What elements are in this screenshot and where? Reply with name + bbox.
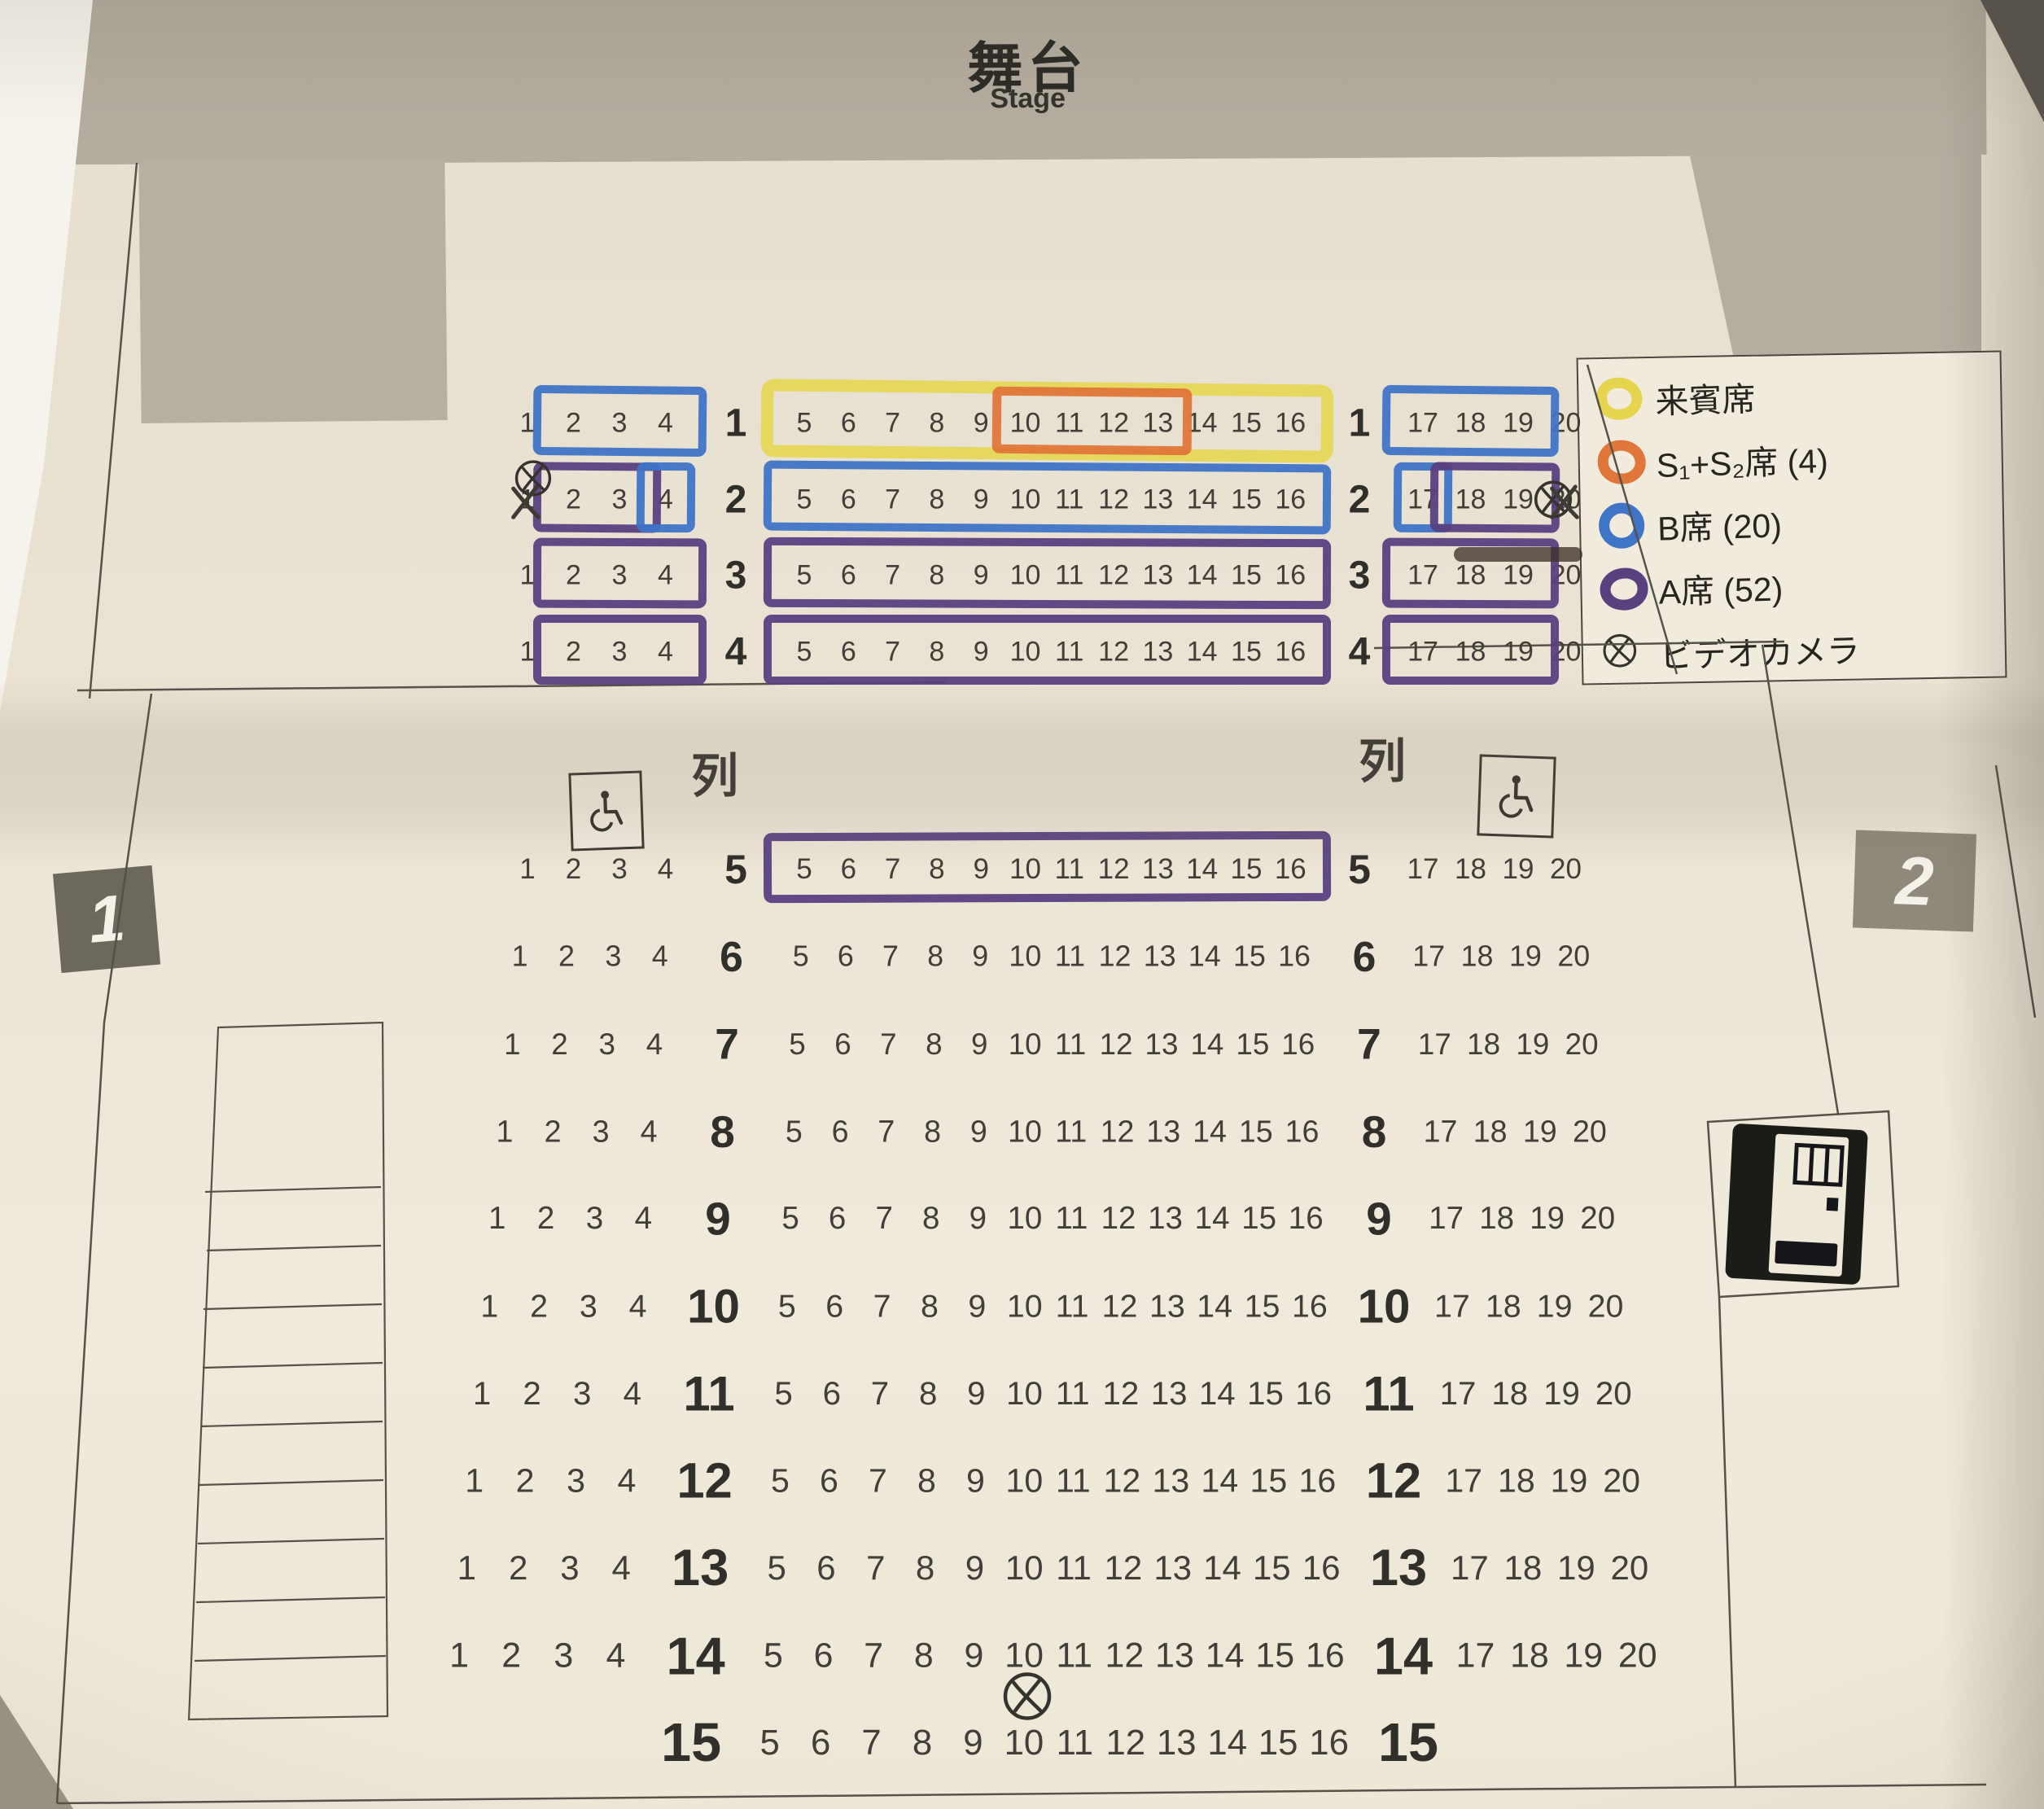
seat-14-11: 11 [1056, 1636, 1092, 1675]
seat-7-12: 12 [1100, 1027, 1133, 1062]
seat-11-10: 10 [1006, 1375, 1043, 1413]
seat-5-8: 8 [929, 853, 944, 886]
seat-6-15: 15 [1233, 940, 1266, 974]
seat-10-16: 16 [1292, 1288, 1328, 1325]
seat-13-11: 11 [1056, 1548, 1092, 1588]
seating-map: 1234567891011121314151617181920111234567… [0, 0, 2044, 1809]
seat-7-9: 9 [971, 1027, 987, 1062]
seat-10-5: 5 [778, 1288, 796, 1325]
seat-7-18: 18 [1467, 1027, 1500, 1062]
seat-13-7: 7 [866, 1548, 885, 1588]
seat-9-11: 11 [1055, 1201, 1088, 1237]
seat-4-16: 16 [1275, 636, 1306, 668]
seat-11-11: 11 [1056, 1375, 1090, 1413]
seat-8-13: 13 [1146, 1114, 1180, 1149]
seat-15-9: 9 [963, 1723, 983, 1763]
seat-9-10: 10 [1007, 1201, 1042, 1237]
seat-11-13: 13 [1151, 1375, 1188, 1413]
seat-13-14: 14 [1203, 1548, 1241, 1588]
seat-9-16: 16 [1289, 1201, 1324, 1237]
seat-1-18: 18 [1455, 408, 1486, 440]
seat-14-14: 14 [1206, 1636, 1245, 1675]
seat-1-9: 9 [974, 408, 989, 440]
seat-5-19: 19 [1503, 853, 1534, 886]
seat-9-9: 9 [969, 1201, 987, 1237]
seat-4-1: 1 [520, 636, 536, 668]
row-3-label-left: 3 [725, 554, 747, 598]
seat-1-13: 13 [1142, 408, 1173, 440]
seat-15-14: 14 [1207, 1723, 1247, 1763]
seat-10-1: 1 [480, 1288, 498, 1325]
seat-14-15: 15 [1255, 1636, 1294, 1675]
seat-12-15: 15 [1250, 1462, 1288, 1500]
seat-7-6: 6 [834, 1027, 851, 1062]
seat-5-9: 9 [973, 853, 988, 886]
seat-9-13: 13 [1148, 1201, 1183, 1237]
seat-5-7: 7 [885, 853, 900, 886]
seat-11-12: 12 [1103, 1375, 1140, 1413]
seat-3-1: 1 [520, 560, 536, 592]
row-10-label-right: 10 [1358, 1279, 1411, 1334]
seat-3-10: 10 [1010, 560, 1041, 592]
seat-3-13: 13 [1142, 560, 1173, 592]
seat-8-3: 3 [593, 1114, 610, 1149]
seat-6-8: 8 [927, 940, 943, 974]
seat-6-11: 11 [1055, 940, 1085, 974]
seat-3-7: 7 [885, 560, 900, 592]
seat-13-15: 15 [1253, 1548, 1291, 1588]
seat-6-13: 13 [1144, 940, 1176, 974]
seat-9-4: 4 [635, 1201, 652, 1237]
seat-4-12: 12 [1098, 636, 1129, 668]
seat-7-14: 14 [1190, 1027, 1223, 1062]
seat-3-15: 15 [1231, 560, 1262, 592]
seat-5-18: 18 [1455, 853, 1486, 886]
seat-9-8: 8 [922, 1201, 939, 1237]
seat-7-10: 10 [1009, 1027, 1042, 1062]
x-mark-row2-seat1 [508, 481, 544, 524]
seat-7-7: 7 [880, 1027, 896, 1062]
row-6-label-left: 6 [720, 932, 743, 981]
row-8-label-left: 8 [710, 1106, 735, 1158]
seat-5-5: 5 [796, 853, 812, 886]
row-4-label-left: 4 [725, 629, 747, 674]
seat-13-20: 20 [1611, 1548, 1649, 1588]
seat-13-16: 16 [1302, 1548, 1341, 1588]
seat-1-12: 12 [1098, 408, 1129, 440]
seat-3-18: 18 [1455, 560, 1486, 592]
seat-11-9: 9 [967, 1375, 985, 1413]
seat-9-6: 6 [829, 1201, 846, 1237]
seat-9-17: 17 [1429, 1201, 1464, 1237]
seat-2-18: 18 [1455, 484, 1486, 515]
seat-11-18: 18 [1491, 1375, 1528, 1413]
seat-7-5: 5 [789, 1027, 805, 1062]
seat-4-5: 5 [797, 636, 812, 668]
seat-4-2: 2 [566, 636, 581, 668]
wheelchair-icon [568, 770, 644, 851]
seat-3-19: 19 [1503, 560, 1534, 592]
seat-14-7: 7 [864, 1636, 883, 1675]
seat-12-14: 14 [1201, 1462, 1239, 1500]
seat-10-3: 3 [580, 1288, 597, 1325]
seat-4-15: 15 [1231, 636, 1262, 668]
seat-13-18: 18 [1504, 1548, 1543, 1588]
seat-6-14: 14 [1188, 940, 1221, 974]
seat-12-10: 10 [1006, 1462, 1044, 1500]
seat-1-19: 19 [1503, 408, 1534, 440]
seat-2-13: 13 [1142, 484, 1173, 515]
seat-11-16: 16 [1295, 1375, 1332, 1413]
seat-14-5: 5 [764, 1636, 783, 1675]
seat-11-19: 19 [1543, 1375, 1580, 1413]
row-7-label-left: 7 [715, 1019, 739, 1069]
seat-11-5: 5 [774, 1375, 792, 1413]
seat-13-3: 3 [560, 1548, 579, 1588]
seat-14-1: 1 [449, 1636, 469, 1675]
seat-10-2: 2 [530, 1288, 548, 1325]
seat-12-7: 7 [869, 1462, 887, 1500]
seat-15-11: 11 [1057, 1723, 1093, 1763]
ink-smudge [1454, 547, 1582, 562]
wheelchair-icon [1477, 754, 1556, 838]
seat-8-4: 4 [641, 1114, 658, 1149]
seat-4-13: 13 [1142, 636, 1173, 668]
seat-15-7: 7 [861, 1723, 881, 1763]
seat-4-17: 17 [1407, 636, 1438, 668]
seat-1-10: 10 [1010, 408, 1041, 440]
seat-2-14: 14 [1187, 484, 1218, 515]
seat-8-10: 10 [1008, 1114, 1042, 1149]
seat-3-20: 20 [1551, 560, 1582, 592]
seat-6-19: 19 [1509, 940, 1542, 974]
seat-11-1: 1 [473, 1375, 491, 1413]
seat-14-19: 19 [1564, 1636, 1603, 1675]
seat-14-6: 6 [814, 1636, 834, 1675]
aisle-label-left: 列 [691, 738, 738, 806]
seat-3-5: 5 [797, 560, 812, 592]
seat-7-11: 11 [1055, 1027, 1086, 1062]
seat-2-2: 2 [566, 484, 581, 515]
seat-8-11: 11 [1055, 1114, 1087, 1149]
seat-14-9: 9 [965, 1636, 984, 1675]
seat-5-16: 16 [1275, 853, 1306, 886]
seat-8-15: 15 [1239, 1114, 1273, 1149]
row-14-label-left: 14 [667, 1625, 725, 1686]
seat-6-18: 18 [1461, 940, 1494, 974]
seat-2-8: 8 [929, 484, 944, 515]
seat-11-20: 20 [1595, 1375, 1632, 1413]
seat-6-4: 4 [652, 940, 668, 974]
row-13-label-right: 13 [1370, 1539, 1427, 1597]
seat-12-11: 11 [1056, 1462, 1091, 1500]
seat-8-5: 5 [786, 1114, 803, 1149]
seat-3-3: 3 [612, 560, 628, 592]
row-7-label-right: 7 [1357, 1019, 1381, 1069]
seat-9-14: 14 [1195, 1201, 1230, 1237]
row-13-label-left: 13 [672, 1539, 729, 1597]
seat-10-10: 10 [1007, 1288, 1043, 1325]
seat-14-16: 16 [1306, 1636, 1345, 1675]
seat-6-5: 5 [793, 940, 809, 974]
seat-8-9: 9 [970, 1114, 987, 1149]
seat-2-4: 4 [658, 484, 673, 515]
seat-3-12: 12 [1098, 560, 1129, 592]
row-3-label-right: 3 [1349, 554, 1371, 598]
seat-13-13: 13 [1153, 1548, 1192, 1588]
seat-14-12: 12 [1105, 1636, 1144, 1675]
seat-6-16: 16 [1278, 940, 1311, 974]
seat-6-7: 7 [882, 940, 899, 974]
seat-2-11: 11 [1055, 484, 1083, 515]
seat-15-15: 15 [1258, 1723, 1298, 1763]
seat-10-14: 14 [1197, 1288, 1232, 1325]
seat-1-14: 14 [1187, 408, 1218, 440]
row-11-label-right: 11 [1363, 1365, 1414, 1421]
seat-1-11: 11 [1055, 408, 1083, 440]
seat-1-2: 2 [566, 408, 581, 440]
row-1-label-right: 1 [1349, 401, 1371, 446]
seat-8-1: 1 [497, 1114, 514, 1149]
seat-10-6: 6 [825, 1288, 843, 1325]
seat-4-10: 10 [1010, 636, 1041, 668]
seat-8-7: 7 [878, 1114, 895, 1149]
seat-3-2: 2 [566, 560, 581, 592]
row-6-label-right: 6 [1353, 932, 1377, 981]
seat-10-13: 13 [1149, 1288, 1185, 1325]
seat-9-7: 7 [875, 1201, 892, 1237]
seat-10-9: 9 [968, 1288, 986, 1325]
seat-13-1: 1 [457, 1548, 476, 1588]
seat-10-4: 4 [629, 1288, 647, 1325]
seat-13-10: 10 [1005, 1548, 1044, 1588]
seat-14-17: 17 [1456, 1636, 1495, 1675]
row-11-label-left: 11 [683, 1365, 734, 1421]
seat-1-5: 5 [797, 408, 812, 440]
seat-12-17: 17 [1445, 1462, 1482, 1500]
seat-5-6: 6 [841, 853, 856, 886]
seat-4-8: 8 [929, 636, 944, 668]
seat-6-6: 6 [838, 940, 854, 974]
seat-15-13: 13 [1157, 1723, 1197, 1763]
seating-chart-photo: 舞台 Stage 来賓席S₁+S₂席 (4)B席 (20)A席 (52)ビデオカ… [0, 0, 2044, 1809]
seat-1-1: 1 [520, 408, 536, 440]
seat-5-2: 2 [566, 853, 581, 886]
seat-8-12: 12 [1101, 1114, 1135, 1149]
seat-12-12: 12 [1104, 1462, 1141, 1500]
seat-9-12: 12 [1101, 1201, 1136, 1237]
seat-9-19: 19 [1530, 1201, 1565, 1237]
seat-4-7: 7 [885, 636, 900, 668]
seat-7-2: 2 [551, 1027, 567, 1062]
seat-4-6: 6 [841, 636, 856, 668]
seat-5-11: 11 [1055, 853, 1084, 886]
seat-2-10: 10 [1010, 484, 1041, 515]
seat-7-20: 20 [1565, 1027, 1599, 1062]
seat-15-6: 6 [811, 1723, 830, 1763]
seat-14-13: 13 [1155, 1636, 1194, 1675]
seat-5-13: 13 [1142, 853, 1174, 886]
row-15-label-right: 15 [1378, 1712, 1438, 1774]
seat-14-4: 4 [606, 1636, 625, 1675]
seat-10-12: 12 [1102, 1288, 1138, 1325]
seat-2-12: 12 [1098, 484, 1129, 515]
seat-14-8: 8 [914, 1636, 934, 1675]
seat-3-17: 17 [1407, 560, 1438, 592]
seat-12-16: 16 [1299, 1462, 1337, 1500]
seat-13-2: 2 [509, 1548, 527, 1588]
seat-1-20: 20 [1551, 408, 1582, 440]
seat-5-4: 4 [658, 853, 673, 886]
seat-12-6: 6 [820, 1462, 838, 1500]
seat-15-8: 8 [913, 1723, 932, 1763]
seat-5-15: 15 [1231, 853, 1263, 886]
row-2-label-left: 2 [725, 477, 747, 522]
seat-3-8: 8 [929, 560, 944, 592]
row-8-label-right: 8 [1362, 1106, 1387, 1158]
seat-5-17: 17 [1407, 853, 1439, 886]
seat-8-20: 20 [1573, 1114, 1607, 1149]
seat-2-17: 17 [1407, 484, 1438, 515]
seat-15-5: 5 [760, 1723, 780, 1763]
seat-11-14: 14 [1199, 1375, 1236, 1413]
seat-8-18: 18 [1473, 1114, 1508, 1149]
seat-11-7: 7 [871, 1375, 889, 1413]
seat-3-9: 9 [974, 560, 989, 592]
seat-14-18: 18 [1510, 1636, 1549, 1675]
seat-11-6: 6 [823, 1375, 841, 1413]
seat-13-8: 8 [916, 1548, 934, 1588]
seat-2-19: 19 [1503, 484, 1534, 515]
seat-4-3: 3 [612, 636, 628, 668]
seat-12-20: 20 [1603, 1462, 1640, 1500]
seat-6-17: 17 [1412, 940, 1445, 974]
seat-10-15: 15 [1245, 1288, 1280, 1325]
seat-1-17: 17 [1407, 408, 1438, 440]
seat-7-13: 13 [1145, 1027, 1179, 1062]
seat-4-11: 11 [1055, 636, 1083, 668]
seat-6-3: 3 [605, 940, 621, 974]
row-4-label-right: 4 [1349, 629, 1371, 674]
seat-8-8: 8 [924, 1114, 941, 1149]
seat-1-3: 3 [612, 408, 628, 440]
seat-7-4: 4 [646, 1027, 663, 1062]
seat-3-16: 16 [1275, 560, 1306, 592]
seat-7-15: 15 [1236, 1027, 1269, 1062]
seat-12-9: 9 [966, 1462, 985, 1500]
seat-7-17: 17 [1418, 1027, 1451, 1062]
seat-8-2: 2 [545, 1114, 562, 1149]
row-12-label-right: 12 [1366, 1452, 1421, 1510]
x-mark-row2-seat20 [1547, 481, 1582, 524]
seat-8-17: 17 [1424, 1114, 1458, 1149]
seat-15-16: 16 [1309, 1723, 1349, 1763]
seat-6-1: 1 [512, 940, 528, 974]
seat-1-7: 7 [885, 408, 900, 440]
seat-15-10: 10 [1004, 1723, 1044, 1763]
seat-4-14: 14 [1187, 636, 1218, 668]
seat-9-2: 2 [537, 1201, 554, 1237]
seat-3-14: 14 [1187, 560, 1218, 592]
seat-4-4: 4 [658, 636, 673, 668]
seat-7-19: 19 [1516, 1027, 1549, 1062]
seat-13-4: 4 [612, 1548, 631, 1588]
seat-12-3: 3 [567, 1462, 585, 1500]
row-1-label-left: 1 [725, 401, 747, 446]
seat-7-3: 3 [598, 1027, 615, 1062]
seat-8-16: 16 [1285, 1114, 1320, 1149]
seat-5-3: 3 [611, 853, 627, 886]
seat-1-15: 15 [1231, 408, 1262, 440]
seat-4-9: 9 [974, 636, 989, 668]
seat-4-19: 19 [1503, 636, 1534, 668]
seat-15-12: 12 [1105, 1723, 1145, 1763]
seat-12-1: 1 [465, 1462, 484, 1500]
row-5-label-left: 5 [724, 846, 747, 893]
seat-1-8: 8 [929, 408, 944, 440]
seat-6-20: 20 [1557, 940, 1590, 974]
row-5-label-right: 5 [1348, 846, 1371, 893]
seat-7-1: 1 [504, 1027, 520, 1062]
seat-3-4: 4 [658, 560, 673, 592]
seat-8-19: 19 [1523, 1114, 1557, 1149]
seat-2-15: 15 [1231, 484, 1262, 515]
row-9-label-left: 9 [705, 1193, 730, 1246]
seat-10-17: 17 [1434, 1288, 1470, 1325]
seat-4-20: 20 [1551, 636, 1582, 668]
seat-13-5: 5 [767, 1548, 786, 1588]
seat-10-7: 7 [873, 1288, 891, 1325]
seat-2-6: 6 [841, 484, 856, 515]
seat-10-19: 19 [1537, 1288, 1573, 1325]
seat-10-8: 8 [921, 1288, 939, 1325]
seat-13-17: 17 [1451, 1548, 1489, 1588]
row-9-label-right: 9 [1366, 1193, 1391, 1246]
seat-7-8: 8 [926, 1027, 942, 1062]
seat-12-19: 19 [1551, 1462, 1588, 1500]
seat-9-20: 20 [1580, 1201, 1615, 1237]
seat-1-6: 6 [841, 408, 856, 440]
seat-12-13: 13 [1153, 1462, 1190, 1500]
seat-2-16: 16 [1275, 484, 1306, 515]
seat-11-4: 4 [624, 1375, 641, 1413]
seat-14-3: 3 [554, 1636, 573, 1675]
seat-10-18: 18 [1486, 1288, 1521, 1325]
seat-12-4: 4 [618, 1462, 637, 1500]
seat-12-8: 8 [917, 1462, 936, 1500]
seat-1-16: 16 [1275, 408, 1306, 440]
seat-9-5: 5 [781, 1201, 799, 1237]
row-12-label-left: 12 [676, 1452, 732, 1510]
seat-6-12: 12 [1099, 940, 1131, 974]
seat-6-2: 2 [558, 940, 575, 974]
seat-14-2: 2 [501, 1636, 521, 1675]
seat-2-9: 9 [974, 484, 989, 515]
seat-11-17: 17 [1440, 1375, 1477, 1413]
seat-2-7: 7 [885, 484, 900, 515]
row-10-label-left: 10 [687, 1279, 740, 1334]
row-14-label-right: 14 [1374, 1625, 1433, 1686]
seat-11-15: 15 [1247, 1375, 1284, 1413]
seat-11-3: 3 [573, 1375, 591, 1413]
seat-11-8: 8 [919, 1375, 937, 1413]
seat-2-3: 3 [612, 484, 628, 515]
seat-13-12: 12 [1105, 1548, 1143, 1588]
seat-14-20: 20 [1618, 1636, 1657, 1675]
row-2-label-right: 2 [1349, 477, 1371, 522]
seat-5-1: 1 [519, 853, 535, 886]
seat-5-20: 20 [1550, 853, 1582, 886]
